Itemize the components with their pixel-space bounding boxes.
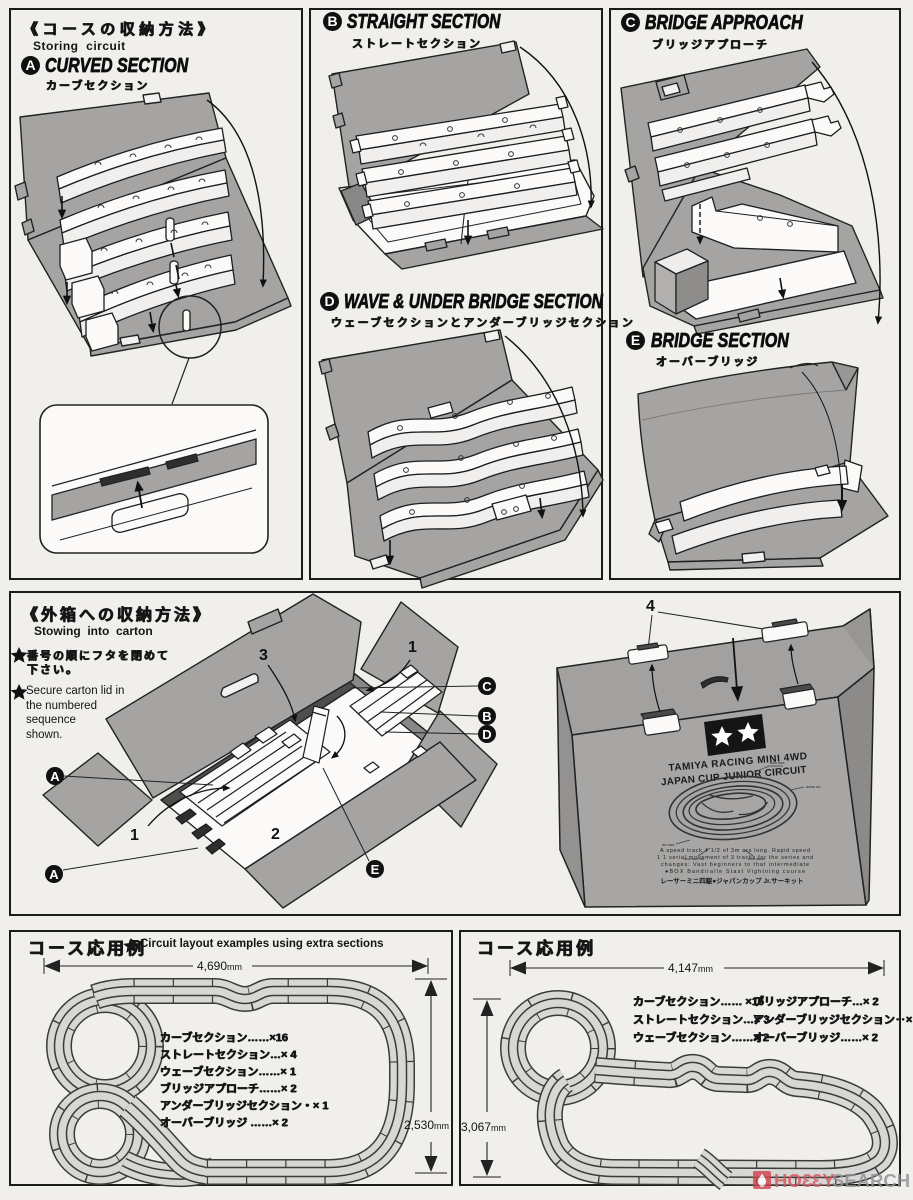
svg-text:A: A — [49, 867, 59, 882]
svg-text:C: C — [482, 679, 492, 694]
svg-text:D: D — [482, 727, 491, 742]
svg-text:1: 1 — [130, 827, 139, 844]
svg-text:aaaa aa: aaaa aa — [806, 784, 821, 789]
svg-text:aaa aaa: aaa aaa — [770, 760, 785, 765]
svg-text:4: 4 — [646, 598, 655, 615]
svg-text:2: 2 — [271, 826, 280, 843]
svg-text:B: B — [482, 709, 491, 724]
svg-text:aa aaa: aa aaa — [662, 842, 675, 847]
svg-text:changes: Vast beginners to tha: changes: Vast beginners to that intermed… — [661, 862, 809, 868]
svg-text:E: E — [371, 862, 380, 877]
svg-text:●BOX Bandiralle Stast Vightnin: ●BOX Bandiralle Stast Vightning course — [665, 869, 805, 875]
svg-text:A speed track 4 1/2 of 3m ars: A speed track 4 1/2 of 3m ars long. Rapi… — [660, 848, 810, 854]
svg-text:1: 1 — [408, 639, 417, 656]
svg-text:A: A — [50, 769, 60, 784]
svg-text:1 1 serial movement of 3 track: 1 1 serial movement of 3 tracks for the … — [657, 855, 813, 861]
svg-text:レーサーミニ四駆●ジャパンカップ Jr.サーキット: レーサーミニ四駆●ジャパンカップ Jr.サーキット — [660, 876, 803, 885]
svg-text:3: 3 — [259, 647, 268, 664]
